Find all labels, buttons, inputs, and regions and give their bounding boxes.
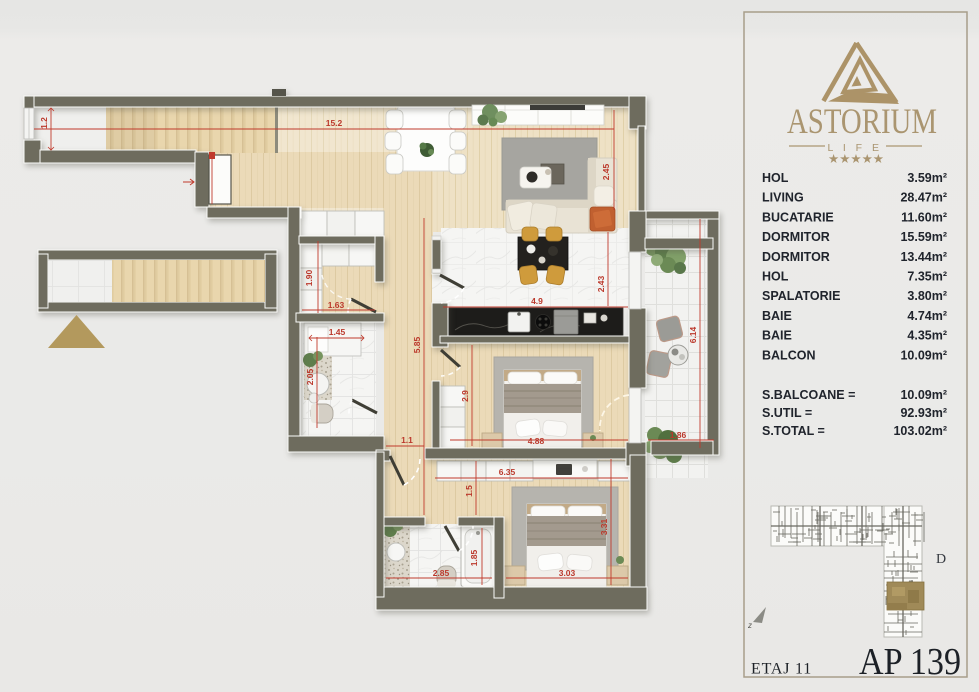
svg-text:SPALATORIE: SPALATORIE <box>762 289 840 303</box>
svg-text:28.47m²: 28.47m² <box>900 191 947 205</box>
svg-text:ETAJ 11: ETAJ 11 <box>751 661 812 678</box>
svg-text:10.09m²: 10.09m² <box>900 348 947 362</box>
svg-text:15.2: 15.2 <box>326 118 343 128</box>
svg-text:BALCON: BALCON <box>762 348 815 362</box>
svg-text:1.2: 1.2 <box>39 117 49 129</box>
svg-text:1.1: 1.1 <box>401 435 413 445</box>
svg-text:BAIE: BAIE <box>762 329 792 343</box>
svg-text:BUCATARIE: BUCATARIE <box>762 210 834 224</box>
svg-text:3.31: 3.31 <box>599 518 609 535</box>
svg-text:1.86: 1.86 <box>670 430 687 440</box>
svg-text:2.05: 2.05 <box>305 368 315 385</box>
svg-text:S.UTIL =: S.UTIL = <box>762 406 812 420</box>
svg-text:4.74m²: 4.74m² <box>907 309 947 323</box>
svg-text:10.09m²: 10.09m² <box>900 388 947 402</box>
svg-text:4.9: 4.9 <box>531 296 543 306</box>
svg-text:4.88: 4.88 <box>528 436 545 446</box>
svg-text:5.85: 5.85 <box>412 336 422 353</box>
svg-text:7.35m²: 7.35m² <box>907 270 947 284</box>
svg-text:3.59m²: 3.59m² <box>907 171 947 185</box>
svg-text:1.85: 1.85 <box>469 549 479 566</box>
svg-text:11.60m²: 11.60m² <box>901 210 947 224</box>
svg-text:3.03: 3.03 <box>559 568 576 578</box>
svg-text:★★★★★: ★★★★★ <box>828 152 884 166</box>
svg-text:S.BALCOANE =: S.BALCOANE = <box>762 388 855 402</box>
svg-text:S.TOTAL =: S.TOTAL = <box>762 424 825 438</box>
svg-text:15.59m²: 15.59m² <box>900 230 947 244</box>
svg-text:1.5: 1.5 <box>464 485 474 497</box>
svg-text:AP 139: AP 139 <box>859 641 961 683</box>
svg-text:6.35: 6.35 <box>499 467 516 477</box>
svg-text:2.85: 2.85 <box>433 568 450 578</box>
svg-text:92.93m²: 92.93m² <box>900 406 947 420</box>
svg-text:2.43: 2.43 <box>596 275 606 292</box>
svg-text:1.45: 1.45 <box>329 327 346 337</box>
svg-text:z: z <box>747 621 752 630</box>
svg-text:4.35m²: 4.35m² <box>907 329 947 343</box>
svg-text:DORMITOR: DORMITOR <box>762 250 830 264</box>
svg-text:BAIE: BAIE <box>762 309 792 323</box>
svg-text:HOL: HOL <box>762 270 789 284</box>
svg-text:3.80m²: 3.80m² <box>907 289 947 303</box>
svg-text:2.45: 2.45 <box>601 163 611 180</box>
svg-text:DORMITOR: DORMITOR <box>762 230 830 244</box>
svg-text:13.44m²: 13.44m² <box>900 250 947 264</box>
svg-text:D: D <box>936 552 946 567</box>
svg-text:ASTORIUM: ASTORIUM <box>787 101 937 141</box>
svg-text:6.14: 6.14 <box>688 326 698 343</box>
svg-text:1.90: 1.90 <box>304 269 314 286</box>
svg-text:2.9: 2.9 <box>460 390 470 402</box>
svg-text:HOL: HOL <box>762 171 789 185</box>
svg-text:LIVING: LIVING <box>762 191 804 205</box>
svg-text:1.63: 1.63 <box>328 300 345 310</box>
svg-text:103.02m²: 103.02m² <box>893 424 947 438</box>
